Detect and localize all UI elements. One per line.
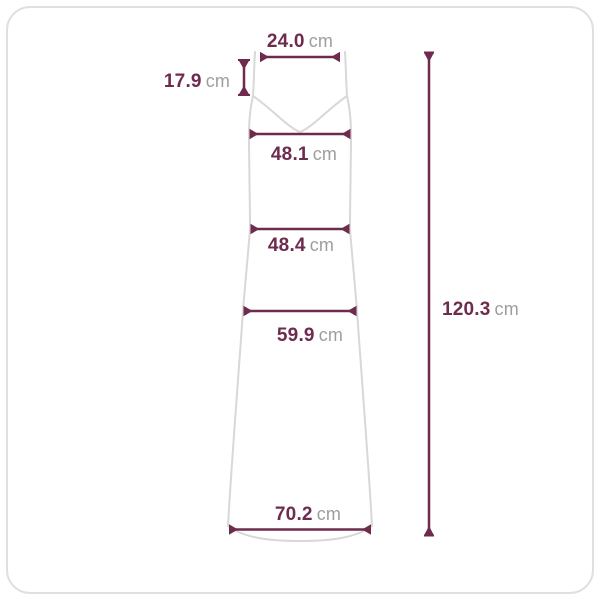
dimension-line-top-width — [260, 52, 340, 62]
measurement-value: 48.4 — [268, 235, 306, 256]
measurement-label-strap-drop: 17.9cm — [164, 71, 230, 93]
measurement-label-bust-width: 48.1cm — [271, 144, 337, 166]
measurement-value: 70.2 — [275, 504, 313, 525]
measurement-label-top-width: 24.0cm — [267, 31, 333, 53]
measurement-value: 24.0 — [267, 31, 305, 52]
measurement-unit: cm — [319, 325, 343, 345]
measurement-label-hem-width: 70.2cm — [275, 504, 341, 526]
dress-body-outline — [228, 52, 372, 541]
measurement-value: 17.9 — [164, 71, 202, 92]
measurement-unit: cm — [310, 235, 334, 255]
measurement-unit: cm — [317, 504, 341, 524]
dimension-line-hip-width — [244, 306, 357, 316]
measurement-label-waist-width: 48.4cm — [268, 235, 334, 257]
measurement-value: 48.1 — [271, 144, 309, 165]
measurement-label-hip-width: 59.9cm — [277, 325, 343, 347]
measurement-label-total-length: 120.3cm — [442, 299, 519, 321]
dimension-line-waist-width — [251, 224, 350, 234]
measurement-unit: cm — [313, 144, 337, 164]
dimension-line-bust-width — [250, 129, 351, 139]
measurement-diagram: 24.0cm 17.9cm 48.1cm 48.4cm 59.9cm 70.2c… — [0, 0, 600, 600]
measurement-value: 59.9 — [277, 325, 315, 346]
measurement-value: 120.3 — [442, 299, 491, 320]
measurement-unit: cm — [206, 71, 230, 91]
dress-outline — [228, 52, 372, 541]
dimension-line-total-length — [424, 53, 434, 536]
dimension-line-strap-drop — [238, 60, 250, 95]
measurement-unit: cm — [495, 299, 519, 319]
neckline-outline — [253, 96, 347, 132]
measurement-unit: cm — [309, 31, 333, 51]
